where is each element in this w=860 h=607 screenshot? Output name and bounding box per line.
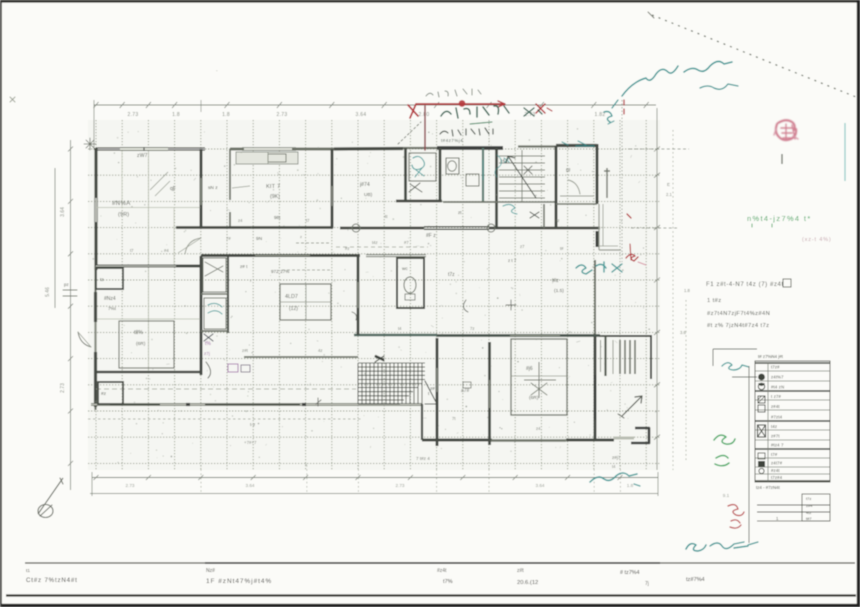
svg-text:3.64: 3.64 [246,483,255,488]
svg-text:z#j7: z#j7 [612,455,621,460]
svg-text:tz#7%4: tz#7%4 [686,577,705,583]
svg-text:z4t%7: z4t%7 [771,375,784,380]
svg-text:98t: 98t [274,215,281,220]
svg-text:#tz4 7: #tz4 7 [771,443,784,448]
svg-text:9.1: 9.1 [723,493,730,498]
svg-text:7j: 7j [645,581,649,587]
svg-text:1.8: 1.8 [172,112,180,118]
svg-text:1.8: 1.8 [222,112,230,118]
svg-text:#t z% 7jzN4t#7z4 t7z: #t z% 7jzN4t#7z4 t7z [707,323,769,329]
svg-text:z#4: z#4 [806,503,813,508]
svg-text:F1 z#t-4-N7 t4z (7) #z4t: F1 z#t-4-N7 t4z (7) #z4t [706,282,784,288]
svg-text:Nz#: Nz# [206,568,215,574]
svg-text:(6R): (6R) [136,341,146,347]
svg-text:+7#+7: +7#+7 [244,440,257,445]
svg-text:1F #zNt47%j#t4%: 1F #zNt47%j#t4% [206,578,272,585]
svg-text:z4: z4 [238,218,243,223]
svg-text:# tz7%4: # tz7%4 [620,570,639,576]
svg-text:3.64: 3.64 [60,207,66,217]
svg-text:z#4t: z#4t [771,404,780,409]
svg-text:(9R): (9R) [118,212,129,218]
svg-text:n%t4-jz7%4 t*: n%t4-jz7%4 t* [747,214,812,223]
svg-text:z#t: z#t [242,348,249,353]
svg-text:#z: #z [345,246,349,251]
svg-text:t7z#: t7z# [771,365,780,370]
svg-text:2.73: 2.73 [126,483,135,488]
svg-text:7%t: 7%t [108,306,117,311]
svg-text:5.46: 5.46 [45,287,51,297]
svg-text:2.80: 2.80 [419,112,430,118]
svg-text:z#t: z#t [517,568,524,574]
svg-text:z4t7#: z4t7# [771,461,783,466]
svg-text:j#74: j#74 [359,182,370,188]
svg-text:#z4t: #z4t [771,468,780,473]
svg-text:7z: 7z [470,326,474,331]
svg-text:UB): UB) [364,192,373,198]
svg-text:z#7t: z#7t [771,434,780,439]
svg-text:z7: z7 [520,244,525,249]
svg-text:1.8: 1.8 [684,288,690,293]
svg-text:4tz: 4tz [806,510,811,515]
svg-text:#t4 zN: #t4 zN [771,385,784,390]
svg-text:9N: 9N [256,236,263,242]
svg-text:t-z: t-z [250,422,256,428]
svg-text:#z7t4N7zjF7t4%z#4N: #z7t4N7zjF7t4%z#4N [707,311,770,317]
svg-text:20.6.(12: 20.6.(12 [517,580,538,586]
svg-text:zW7: zW7 [137,153,148,159]
svg-text:sN z: sN z [208,185,218,191]
svg-text:t#7: t#7 [806,516,812,521]
svg-text:Ct#z 7%tzN4#t: Ct#z 7%tzN4#t [26,577,78,584]
svg-text:7#: 7# [226,236,231,241]
svg-text:E: E [667,182,670,187]
svg-text:#j6: #j6 [526,366,533,372]
svg-text:97Z 27%: 97Z 27% [271,269,289,274]
svg-text:(12): (12) [289,306,298,312]
svg-text:z#: z# [430,386,435,391]
svg-text:#z: #z [101,391,107,397]
svg-text:z: z [300,234,302,239]
svg-text:#Nz4: #Nz4 [104,296,116,302]
svg-text:1.8: 1.8 [627,483,634,488]
svg-text:z t 7: z t 7 [508,258,517,263]
svg-text:t1: t1 [26,568,30,574]
svg-text:#4: #4 [164,248,169,253]
svg-text:1 t#z: 1 t#z [707,298,722,304]
svg-text:2.73: 2.73 [128,112,139,118]
svg-text:t7z: t7z [806,496,811,501]
svg-text:z# t: z# t [240,264,248,269]
svg-text:4z: 4z [318,348,322,353]
svg-text:3.64: 3.64 [356,112,367,118]
svg-text:wc: wc [402,266,408,271]
svg-text:t7z#4: t7z#4 [771,475,783,480]
svg-text:t%: t% [205,341,211,347]
svg-text:t4z: t4z [771,424,777,429]
svg-text:#F z: #F z [426,233,436,239]
svg-text:2.73: 2.73 [396,483,405,488]
svg-text:3.64: 3.64 [536,483,545,488]
svg-text:t8%: t8% [134,330,143,336]
svg-text:t4z: t4z [372,240,378,245]
svg-text:t# z7%N4 j#t: t# z7%N4 j#t [758,354,784,359]
svg-text:1.82: 1.82 [595,112,606,118]
svg-text:4z: 4z [555,218,559,223]
svg-text:7 t#z 4: 7 t#z 4 [416,456,430,461]
svg-text:#7: #7 [404,240,409,245]
svg-text:qF: qF [170,186,176,192]
svg-text:pz: pz [64,282,69,287]
svg-text:2.73: 2.73 [60,383,66,393]
svg-text:t z7#: t z7# [771,394,782,399]
svg-text:a7#: a7# [461,388,470,394]
svg-text:(1.5): (1.5) [554,288,564,294]
svg-text:3.6: 3.6 [680,330,686,335]
svg-text:tz: tz [100,277,104,283]
svg-text:(xz-t 4%): (xz-t 4%) [802,237,832,243]
svg-text:2.1: 2.1 [666,192,672,197]
svg-text:t7z: t7z [448,272,455,278]
svg-text:t7#: t7# [771,452,778,457]
svg-text:t#: t# [566,168,570,174]
svg-text:(6R): (6R) [529,395,539,401]
svg-text:#7zt4: #7zt4 [771,415,783,420]
svg-text:(9K): (9K) [270,194,280,200]
svg-text:t#4z7%j4: t#4z7%j4 [441,138,463,143]
svg-text:z4: z4 [536,426,541,431]
svg-text:t7%: t7% [443,579,453,585]
svg-text:4LD7: 4LD7 [285,294,298,300]
svg-text:2.73: 2.73 [277,112,288,118]
svg-text:#N%A: #N%A [112,201,131,207]
svg-text:#z4t: #z4t [437,568,447,574]
svg-text:tz4 - #7zN4t: tz4 - #7zN4t [756,485,780,490]
